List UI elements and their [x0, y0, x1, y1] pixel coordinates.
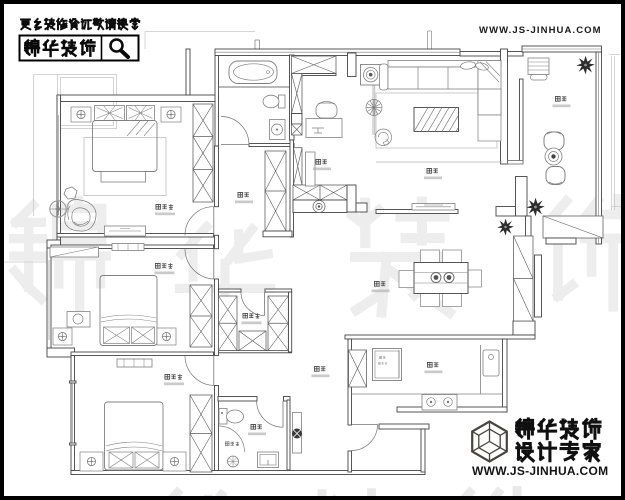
- svg-text:WWW.JS-JINHUA.COM: WWW.JS-JINHUA.COM: [479, 25, 602, 36]
- svg-text:WWW.JS-JINHUA.COM: WWW.JS-JINHUA.COM: [472, 464, 608, 478]
